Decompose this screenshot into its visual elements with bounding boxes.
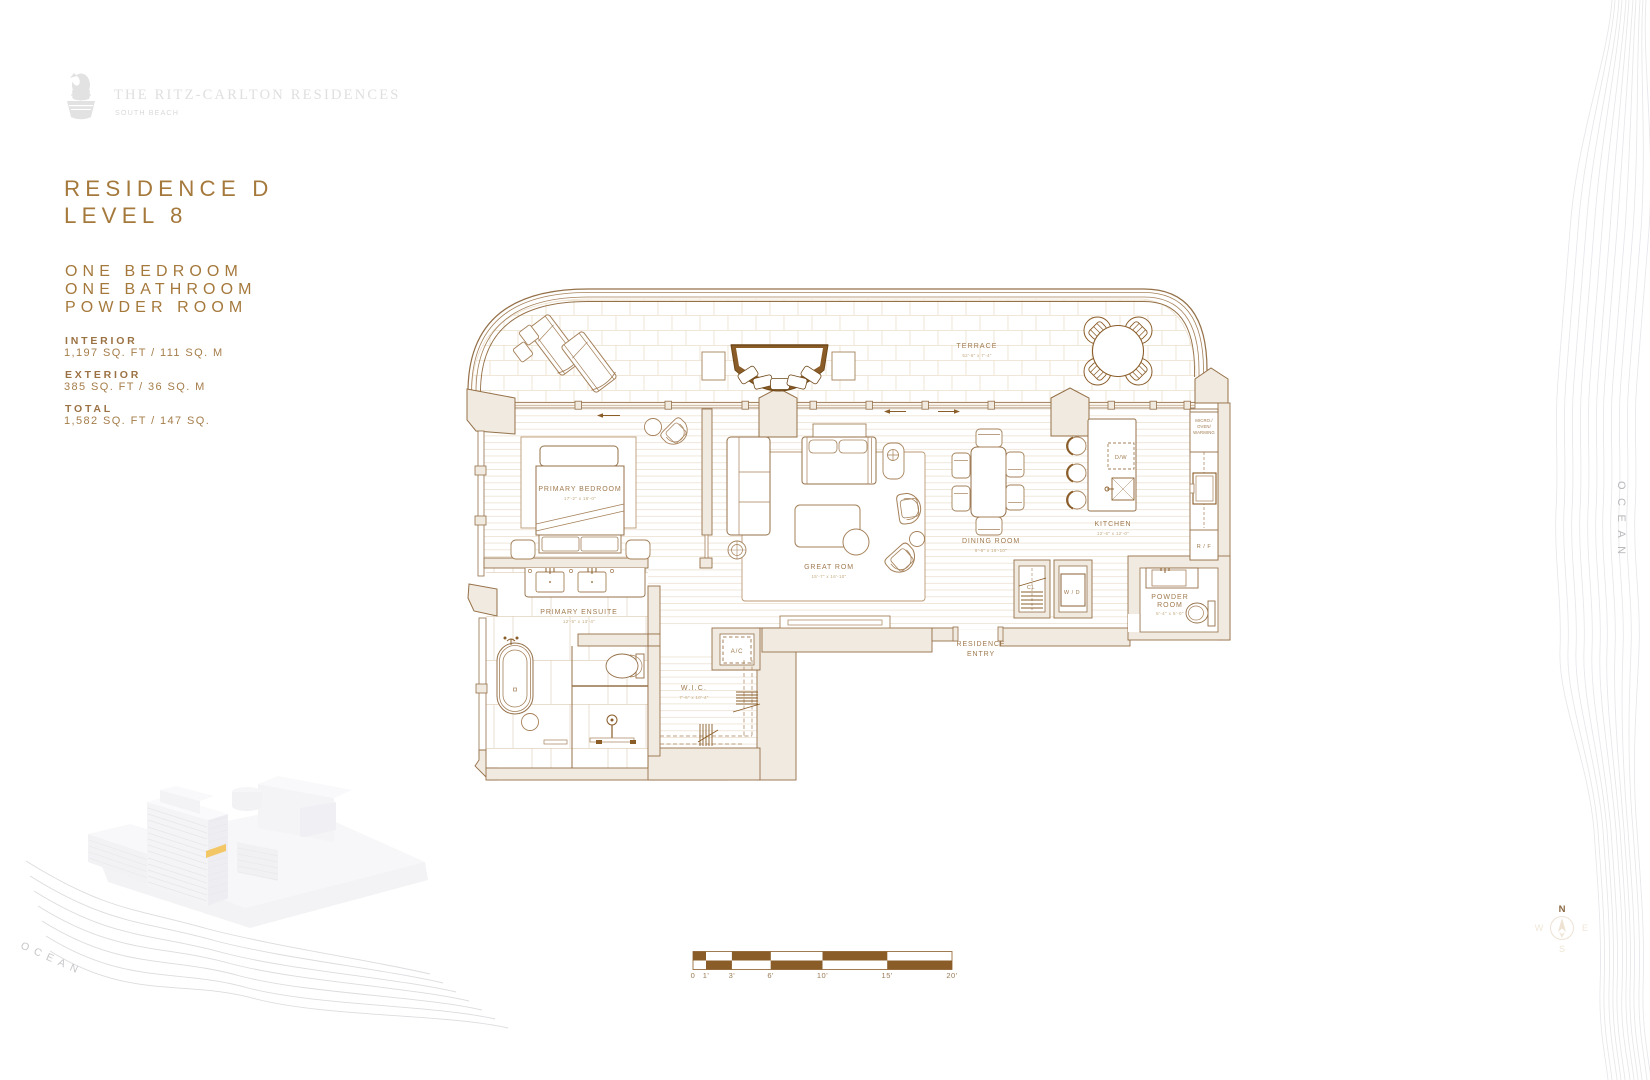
svg-text:10': 10' [817, 971, 828, 980]
svg-text:5'-4" x 5'-0": 5'-4" x 5'-0" [1156, 611, 1184, 616]
svg-text:7'-6" x 10'-4": 7'-6" x 10'-4" [679, 695, 708, 700]
svg-text:1,582 SQ. FT / 147 SQ.: 1,582 SQ. FT / 147 SQ. [64, 415, 210, 427]
svg-text:TOTAL: TOTAL [65, 403, 113, 415]
svg-text:OCEAN: OCEAN [1615, 481, 1627, 563]
svg-text:GREAT ROM: GREAT ROM [804, 564, 854, 571]
svg-text:EXTERIOR: EXTERIOR [65, 369, 141, 381]
svg-text:ONE BATHROOM: ONE BATHROOM [65, 281, 257, 298]
svg-text:WARMING: WARMING [1193, 430, 1215, 435]
svg-text:LEVEL 8: LEVEL 8 [64, 203, 188, 228]
svg-text:N: N [1559, 904, 1566, 915]
svg-text:MICRO./: MICRO./ [1195, 418, 1213, 423]
svg-text:15': 15' [882, 971, 893, 980]
svg-text:9'-6" x 16'-10": 9'-6" x 16'-10" [975, 548, 1007, 553]
svg-text:W.I.C.: W.I.C. [681, 685, 707, 692]
svg-text:W: W [1535, 923, 1544, 933]
svg-text:E: E [1582, 923, 1588, 933]
svg-text:1': 1' [703, 971, 710, 980]
svg-text:PRIMARY ENSUITE: PRIMARY ENSUITE [540, 609, 617, 616]
svg-text:POWDER: POWDER [1151, 594, 1189, 601]
svg-text:RESIDENCE D: RESIDENCE D [64, 176, 274, 201]
svg-text:S: S [1559, 944, 1565, 954]
svg-text:20': 20' [946, 971, 957, 980]
svg-text:ENTRY: ENTRY [967, 651, 995, 658]
svg-text:CL: CL [1027, 585, 1035, 591]
svg-text:W / D: W / D [1064, 590, 1080, 596]
svg-text:D/W: D/W [1115, 455, 1128, 461]
svg-text:0: 0 [691, 971, 696, 980]
svg-text:OVEN/: OVEN/ [1197, 424, 1212, 429]
svg-text:15'-7" x 16'-10": 15'-7" x 16'-10" [812, 574, 847, 579]
svg-text:POWDER ROOM: POWDER ROOM [65, 299, 247, 316]
svg-text:PRIMARY BEDROOM: PRIMARY BEDROOM [538, 486, 621, 493]
svg-text:6': 6' [767, 971, 774, 980]
svg-text:385 SQ. FT / 36 SQ. M: 385 SQ. FT / 36 SQ. M [64, 381, 206, 393]
svg-text:KITCHEN: KITCHEN [1094, 521, 1131, 528]
svg-text:DINING ROOM: DINING ROOM [962, 538, 1020, 545]
svg-text:RESIDENCE: RESIDENCE [957, 641, 1006, 648]
svg-text:17'-2" x 18'-0": 17'-2" x 18'-0" [564, 496, 596, 501]
svg-text:ROOM: ROOM [1157, 602, 1183, 609]
svg-text:INTERIOR: INTERIOR [65, 335, 138, 347]
svg-text:R / F: R / F [1197, 544, 1212, 550]
svg-text:THE RITZ-CARLTON RESIDENCES: THE RITZ-CARLTON RESIDENCES [114, 87, 401, 103]
svg-text:SOUTH BEACH: SOUTH BEACH [115, 108, 179, 117]
svg-text:52'-6" x 7'-4": 52'-6" x 7'-4" [962, 353, 991, 358]
svg-text:A/C: A/C [731, 649, 743, 655]
svg-text:3': 3' [729, 971, 736, 980]
svg-text:TERRACE: TERRACE [956, 343, 997, 350]
svg-text:12'-5" x 13'-4": 12'-5" x 13'-4" [563, 619, 595, 624]
svg-text:12'-6" x 12'-0": 12'-6" x 12'-0" [1097, 531, 1129, 536]
svg-text:ONE BEDROOM: ONE BEDROOM [65, 263, 243, 280]
svg-text:1,197 SQ. FT / 111 SQ. M: 1,197 SQ. FT / 111 SQ. M [64, 347, 224, 359]
